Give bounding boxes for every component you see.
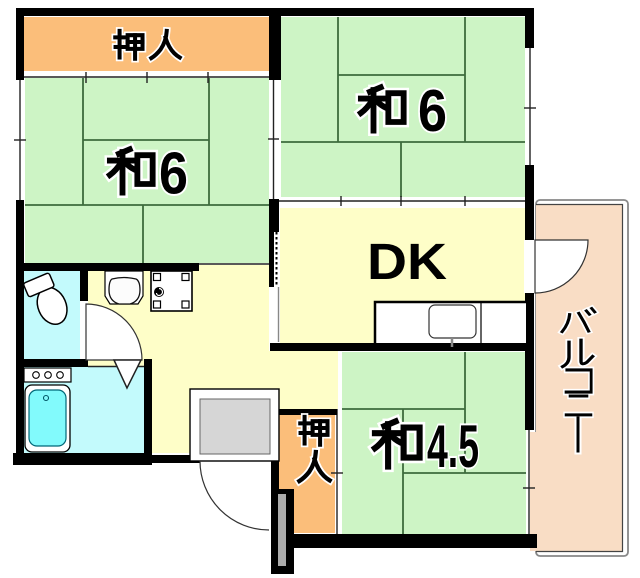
svg-text:DK: DK bbox=[367, 233, 447, 290]
svg-text:6: 6 bbox=[159, 141, 188, 207]
svg-text:4.5: 4.5 bbox=[427, 413, 479, 480]
svg-text:6: 6 bbox=[418, 78, 447, 144]
